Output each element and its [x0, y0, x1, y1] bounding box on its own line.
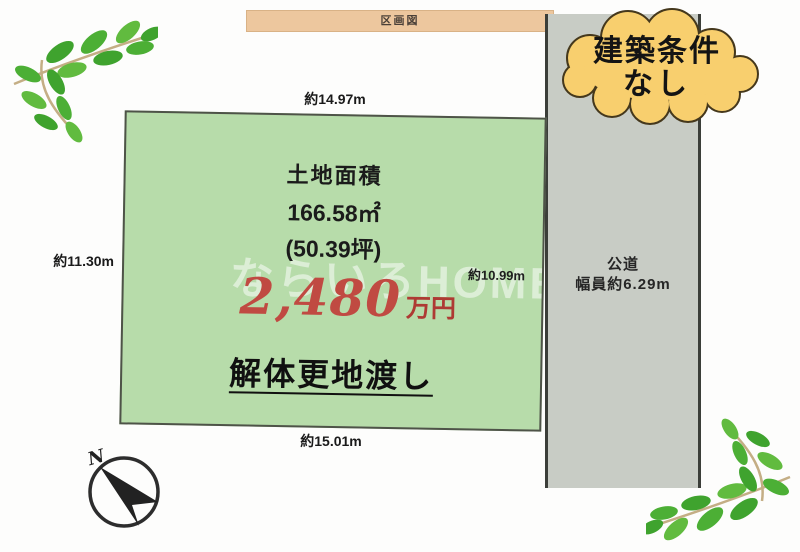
- land-plot: ならいろHOME 土地面積 166.58㎡ (50.39坪) 2,480 万円 …: [119, 110, 546, 431]
- badge-line1: 建築条件: [593, 35, 721, 68]
- land-area-block: 土地面積 166.58㎡ (50.39坪): [124, 154, 544, 267]
- price: 2,480 万円: [239, 266, 457, 329]
- land-area-tsubo: (50.39坪): [124, 226, 543, 267]
- road-name: 公道: [548, 255, 698, 275]
- dimension-bottom: 約15.01m: [276, 431, 386, 451]
- plot-plan-diagram: 区画図 公道 幅員約6.29m: [0, 0, 800, 552]
- badge-line2: なし: [623, 68, 691, 103]
- price-value: 2,480: [239, 266, 402, 328]
- land-area-label: 土地面積: [125, 154, 543, 193]
- no-building-conditions-badge: 建築条件 なし: [554, 8, 760, 126]
- land-area-sqm: 166.58㎡: [125, 190, 544, 231]
- road-width-note: 幅員約6.29m: [548, 275, 698, 295]
- badge-text: 建築条件 なし: [554, 8, 760, 126]
- dimension-right: 約10.99m: [468, 264, 525, 284]
- road-label: 公道 幅員約6.29m: [548, 255, 698, 296]
- price-unit: 万円: [406, 288, 457, 325]
- dimension-left: 約11.30m: [26, 251, 114, 271]
- compass-icon: N: [76, 440, 168, 540]
- title-banner: 区画図: [246, 10, 554, 32]
- handover-note: 解体更地渡し: [122, 346, 541, 399]
- title-banner-label: 区画図: [381, 15, 420, 27]
- north-label: N: [85, 445, 109, 470]
- dimension-top: 約14.97m: [280, 89, 390, 109]
